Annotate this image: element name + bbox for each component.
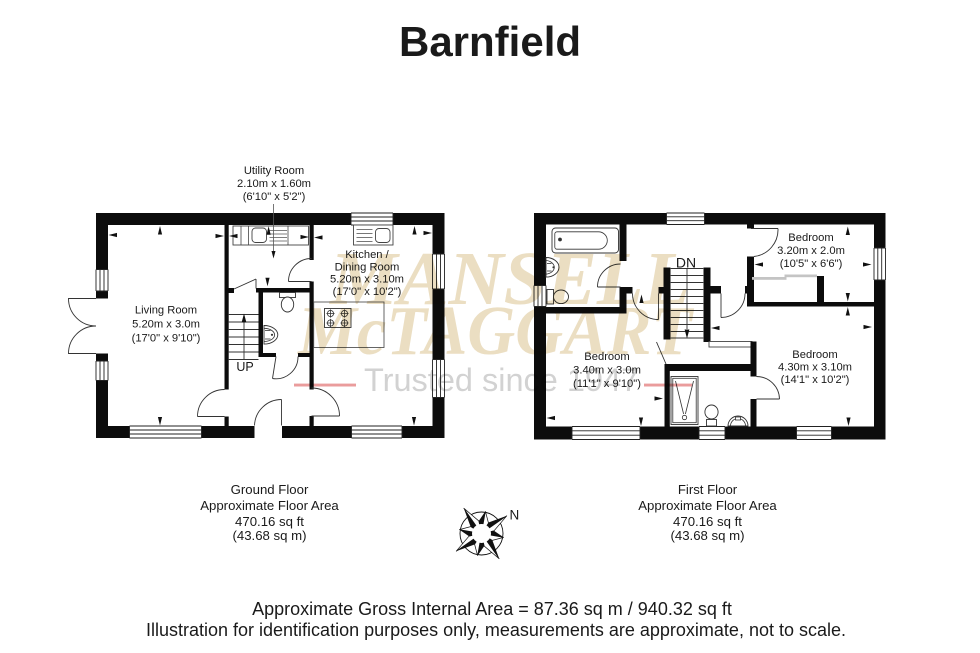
svg-text:Approximate Floor Area: Approximate Floor Area <box>638 498 777 513</box>
svg-text:Bedroom: Bedroom <box>788 232 833 244</box>
svg-text:Approximate Floor Area: Approximate Floor Area <box>200 498 339 513</box>
svg-text:(6'10" x 5'2"): (6'10" x 5'2") <box>243 191 306 203</box>
svg-text:(43.68 sq m): (43.68 sq m) <box>232 528 306 543</box>
svg-text:(14'1" x 10'2"): (14'1" x 10'2") <box>781 374 850 386</box>
svg-text:5.20m x 3.0m: 5.20m x 3.0m <box>132 319 200 331</box>
svg-text:Barnfield: Barnfield <box>399 18 581 65</box>
svg-text:Trusted since 1947: Trusted since 1947 <box>364 362 639 398</box>
svg-text:Bedroom: Bedroom <box>792 349 837 361</box>
svg-text:Living Room: Living Room <box>135 305 197 317</box>
svg-text:4.30m x 3.10m: 4.30m x 3.10m <box>778 362 852 374</box>
svg-text:McTAGGART: McTAGGART <box>297 293 695 370</box>
svg-text:2.10m x 1.60m: 2.10m x 1.60m <box>237 178 311 190</box>
svg-text:(10'5" x 6'6"): (10'5" x 6'6") <box>780 258 843 270</box>
svg-text:First Floor: First Floor <box>678 482 738 497</box>
svg-text:470.16 sq ft: 470.16 sq ft <box>235 514 304 529</box>
svg-text:(17'0" x 9'10"): (17'0" x 9'10") <box>132 333 201 345</box>
svg-text:Illustration for identificatio: Illustration for identification purposes… <box>146 620 846 640</box>
svg-text:Utility Room: Utility Room <box>244 165 304 177</box>
svg-text:Ground Floor: Ground Floor <box>231 482 309 497</box>
svg-text:(43.68 sq m): (43.68 sq m) <box>670 528 744 543</box>
svg-text:470.16 sq ft: 470.16 sq ft <box>673 514 742 529</box>
svg-text:3.20m x 2.0m: 3.20m x 2.0m <box>777 245 845 257</box>
svg-text:UP: UP <box>236 360 253 374</box>
svg-text:Approximate Gross Internal Are: Approximate Gross Internal Area = 87.36 … <box>252 599 732 619</box>
svg-text:N: N <box>510 508 520 523</box>
